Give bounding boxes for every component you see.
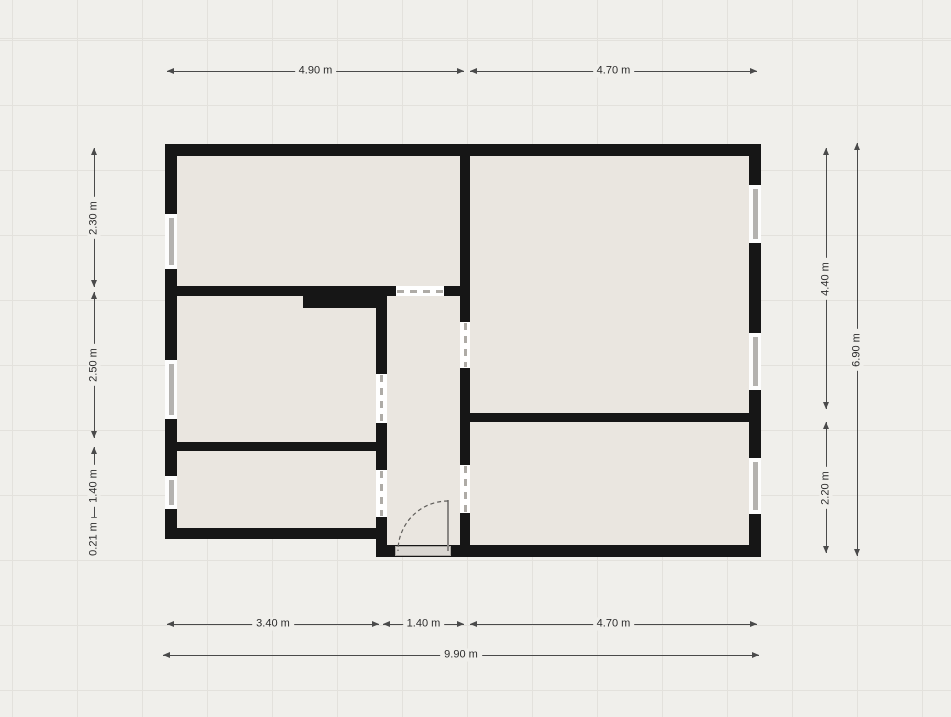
dimension-label: 2.30 m <box>88 197 101 239</box>
opening-dashes <box>397 290 443 293</box>
dimension-arrow <box>823 402 829 409</box>
window-glass <box>169 364 174 415</box>
wall-exterior-bottom-left[interactable] <box>165 528 387 539</box>
dimension-arrow <box>750 621 757 627</box>
dimension-label: 4.40 m <box>820 258 833 300</box>
opening-dashes <box>464 466 467 512</box>
window-left-bottom[interactable] <box>165 476 177 509</box>
dimension-label: 3.40 m <box>252 618 294 631</box>
dimension-arrow <box>854 143 860 150</box>
window-glass <box>169 218 174 265</box>
opening-dashes <box>464 323 467 367</box>
dimension-arrow <box>167 621 174 627</box>
room-bottom-left[interactable] <box>177 451 376 528</box>
doorway-bottom-right-room[interactable] <box>460 465 470 513</box>
dimension-arrow <box>167 68 174 74</box>
window-glass <box>753 462 758 510</box>
dimension-arrow <box>470 621 477 627</box>
dimension-arrow <box>823 422 829 429</box>
dimension-arrow <box>91 431 97 438</box>
window-right-top[interactable] <box>749 185 761 243</box>
dimension-label: 0.21 m <box>88 518 101 560</box>
window-glass <box>753 337 758 386</box>
door-swing-arc <box>396 499 450 553</box>
dimension-label: 4.70 m <box>593 65 635 78</box>
room-top-right[interactable] <box>470 156 749 413</box>
dimension-label: 9.90 m <box>440 649 482 662</box>
dimension-arrow <box>752 652 759 658</box>
window-glass <box>753 189 758 239</box>
room-bottom-right[interactable] <box>470 422 749 545</box>
window-right-middle[interactable] <box>749 333 761 390</box>
dimension-arrow <box>854 549 860 556</box>
floorplan-canvas[interactable]: 4.90 m4.70 m3.40 m1.40 m4.70 m9.90 m2.30… <box>0 0 951 717</box>
dimension-arrow <box>372 621 379 627</box>
dimension-arrow <box>457 68 464 74</box>
dimension-arrow <box>91 292 97 299</box>
doorway-middle-left-room[interactable] <box>376 374 387 423</box>
window-left-top[interactable] <box>165 214 177 269</box>
dimension-arrow <box>91 148 97 155</box>
doorway-top-right-room[interactable] <box>460 322 470 368</box>
dimension-arrow <box>383 621 390 627</box>
dimension-label: 6.90 m <box>851 329 864 371</box>
dimension-arrow <box>823 148 829 155</box>
room-middle-left[interactable] <box>177 296 376 442</box>
dimension-arrow <box>750 68 757 74</box>
doorway-bottom-left-room[interactable] <box>376 470 387 517</box>
dimension-label: 1.40 m <box>403 618 445 631</box>
dimension-arrow <box>470 68 477 74</box>
opening-dashes <box>380 471 383 516</box>
room-top-left[interactable] <box>177 156 460 286</box>
floorplanner-screen: 4.90 m4.70 m3.40 m1.40 m4.70 m9.90 m2.30… <box>0 0 951 717</box>
dimension-arrow <box>91 447 97 454</box>
wall-duct-block[interactable] <box>303 286 387 308</box>
dimension-label: 1.40 m <box>88 465 101 507</box>
dimension-arrow <box>91 280 97 287</box>
dimension-label: 2.20 m <box>820 467 833 509</box>
window-glass <box>169 480 174 505</box>
doorway-hallway-north[interactable] <box>396 286 444 296</box>
window-left-middle[interactable] <box>165 360 177 419</box>
wall-right-divider[interactable] <box>470 413 749 422</box>
dimension-label: 4.90 m <box>295 65 337 78</box>
dimension-arrow <box>163 652 170 658</box>
dimension-arrow <box>457 621 464 627</box>
opening-dashes <box>380 375 383 422</box>
wall-left-lower-divider[interactable] <box>177 442 376 451</box>
window-right-bottom[interactable] <box>749 458 761 514</box>
dimension-arrow <box>823 546 829 553</box>
dimension-label: 2.50 m <box>88 344 101 386</box>
dimension-label: 4.70 m <box>593 618 635 631</box>
